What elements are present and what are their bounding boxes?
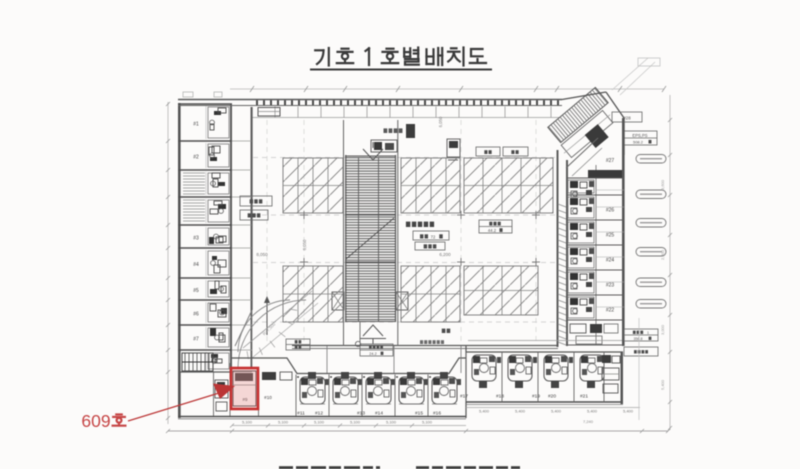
svg-text:#13: #13 [357, 411, 365, 417]
svg-text:#27: #27 [606, 158, 615, 164]
svg-text:#17: #17 [460, 394, 468, 400]
svg-text:#20: #20 [548, 394, 556, 400]
svg-text:#19: #19 [532, 394, 540, 400]
svg-text:356.8: 356.8 [634, 337, 643, 341]
svg-text:5,400: 5,400 [660, 379, 665, 390]
svg-text:3,000: 3,000 [660, 324, 665, 335]
svg-text:2,400: 2,400 [660, 249, 665, 260]
svg-text:#16: #16 [433, 411, 441, 417]
svg-text:72: 72 [431, 235, 436, 240]
svg-text:5,400: 5,400 [623, 409, 634, 414]
svg-text:5,100: 5,100 [242, 420, 253, 425]
svg-text:5,100: 5,100 [422, 420, 433, 425]
svg-text:6,050: 6,050 [302, 239, 307, 250]
svg-text:5,400: 5,400 [587, 409, 598, 414]
svg-text:EPS,PS: EPS,PS [632, 133, 647, 138]
svg-text:8,050: 8,050 [256, 252, 268, 257]
svg-text:#12: #12 [315, 411, 323, 417]
svg-text:508.2: 508.2 [633, 140, 644, 145]
svg-text:5,100: 5,100 [314, 420, 325, 425]
svg-text:#22: #22 [606, 308, 615, 314]
svg-text:R=7,500: R=7,500 [262, 321, 277, 336]
svg-text:#14: #14 [375, 411, 383, 417]
svg-text:5,100: 5,100 [350, 420, 361, 425]
svg-text:6,200: 6,200 [439, 252, 451, 257]
svg-text:5,400: 5,400 [551, 409, 562, 414]
svg-text:5,400: 5,400 [515, 409, 526, 414]
svg-text:5,100: 5,100 [386, 420, 397, 425]
svg-text:24.2: 24.2 [369, 352, 376, 356]
svg-text:5,400: 5,400 [479, 409, 490, 414]
svg-text:#7: #7 [193, 337, 199, 343]
svg-text:7,240: 7,240 [583, 419, 594, 424]
svg-text:609: 609 [81, 411, 110, 431]
svg-text:#24: #24 [606, 258, 615, 264]
svg-text:#26: #26 [606, 208, 615, 214]
svg-text:#10: #10 [264, 395, 272, 400]
svg-text:#11: #11 [297, 411, 305, 417]
svg-text:#1: #1 [193, 122, 199, 128]
svg-text:#4: #4 [193, 262, 199, 268]
svg-text:#21: #21 [580, 394, 588, 400]
svg-text:#18: #18 [496, 394, 504, 400]
svg-text:3,600: 3,600 [660, 179, 665, 190]
svg-text:#15: #15 [415, 411, 423, 417]
svg-text:#2: #2 [193, 155, 199, 161]
svg-text:5,100: 5,100 [278, 420, 289, 425]
svg-text:#25: #25 [606, 233, 615, 239]
svg-text:44.2: 44.2 [488, 228, 497, 233]
svg-text:#6: #6 [193, 312, 199, 318]
svg-text:6,050: 6,050 [438, 116, 443, 127]
svg-text:#23: #23 [606, 283, 615, 289]
svg-text:#5: #5 [193, 288, 199, 294]
svg-text:1: 1 [647, 331, 649, 335]
svg-text:#3: #3 [193, 236, 199, 242]
